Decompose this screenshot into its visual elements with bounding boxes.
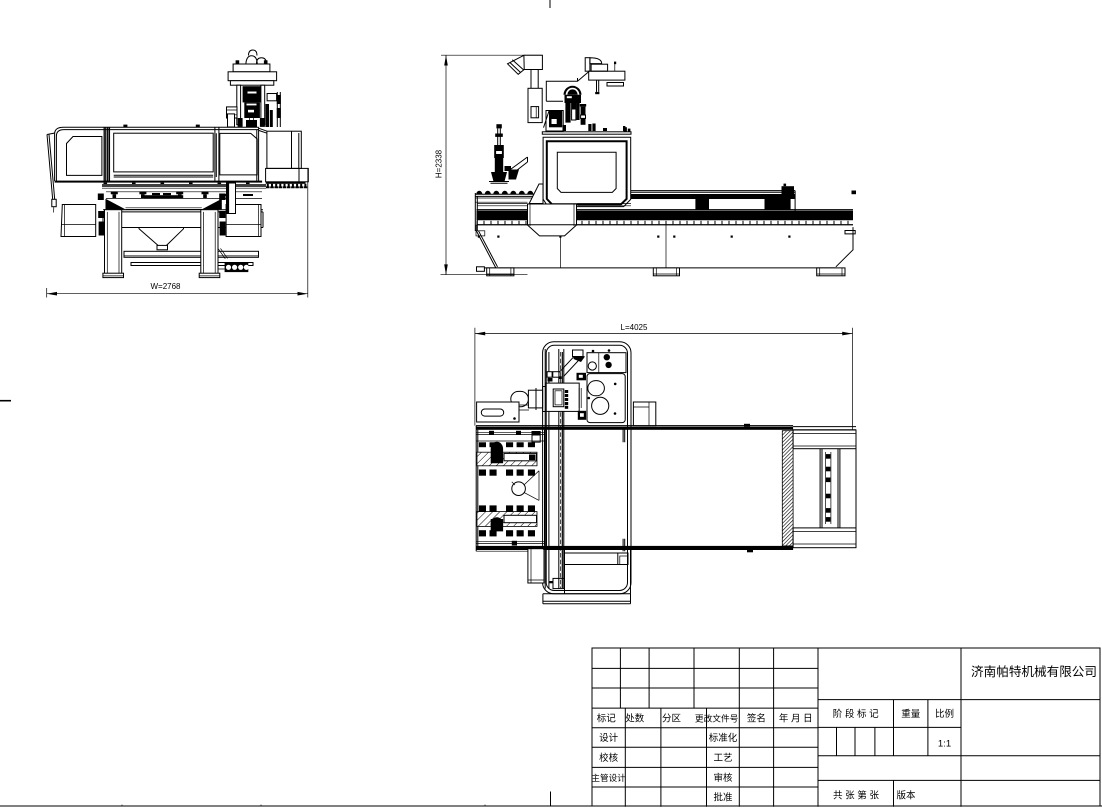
svg-text:更改文件号: 更改文件号 bbox=[695, 713, 739, 724]
svg-text:签名: 签名 bbox=[747, 713, 766, 725]
svg-text:共 张 第 张: 共 张 第 张 bbox=[833, 790, 879, 802]
svg-text:阶 段 标 记: 阶 段 标 记 bbox=[833, 708, 879, 720]
svg-text:W=2768: W=2768 bbox=[150, 282, 181, 291]
svg-text:标准化: 标准化 bbox=[709, 732, 738, 744]
svg-text:年 月 日: 年 月 日 bbox=[779, 713, 813, 725]
svg-text:处数: 处数 bbox=[625, 713, 645, 725]
svg-text:H=2338: H=2338 bbox=[434, 149, 443, 178]
svg-text:版本: 版本 bbox=[896, 790, 916, 802]
svg-text:重量: 重量 bbox=[901, 708, 921, 720]
svg-text:1:1: 1:1 bbox=[938, 739, 951, 750]
svg-text:济南帕特机械有限公司: 济南帕特机械有限公司 bbox=[971, 664, 1097, 679]
svg-text:标记: 标记 bbox=[597, 713, 617, 725]
svg-text:比例: 比例 bbox=[935, 708, 954, 720]
svg-text:工艺: 工艺 bbox=[713, 753, 732, 764]
svg-text:校核: 校核 bbox=[599, 752, 619, 764]
svg-text:分区: 分区 bbox=[662, 714, 682, 725]
svg-text:批准: 批准 bbox=[713, 792, 733, 804]
svg-text:L=4025: L=4025 bbox=[621, 323, 648, 332]
svg-text:主管设计: 主管设计 bbox=[591, 772, 626, 783]
svg-text:审核: 审核 bbox=[713, 772, 733, 784]
svg-text:设计: 设计 bbox=[599, 732, 619, 744]
